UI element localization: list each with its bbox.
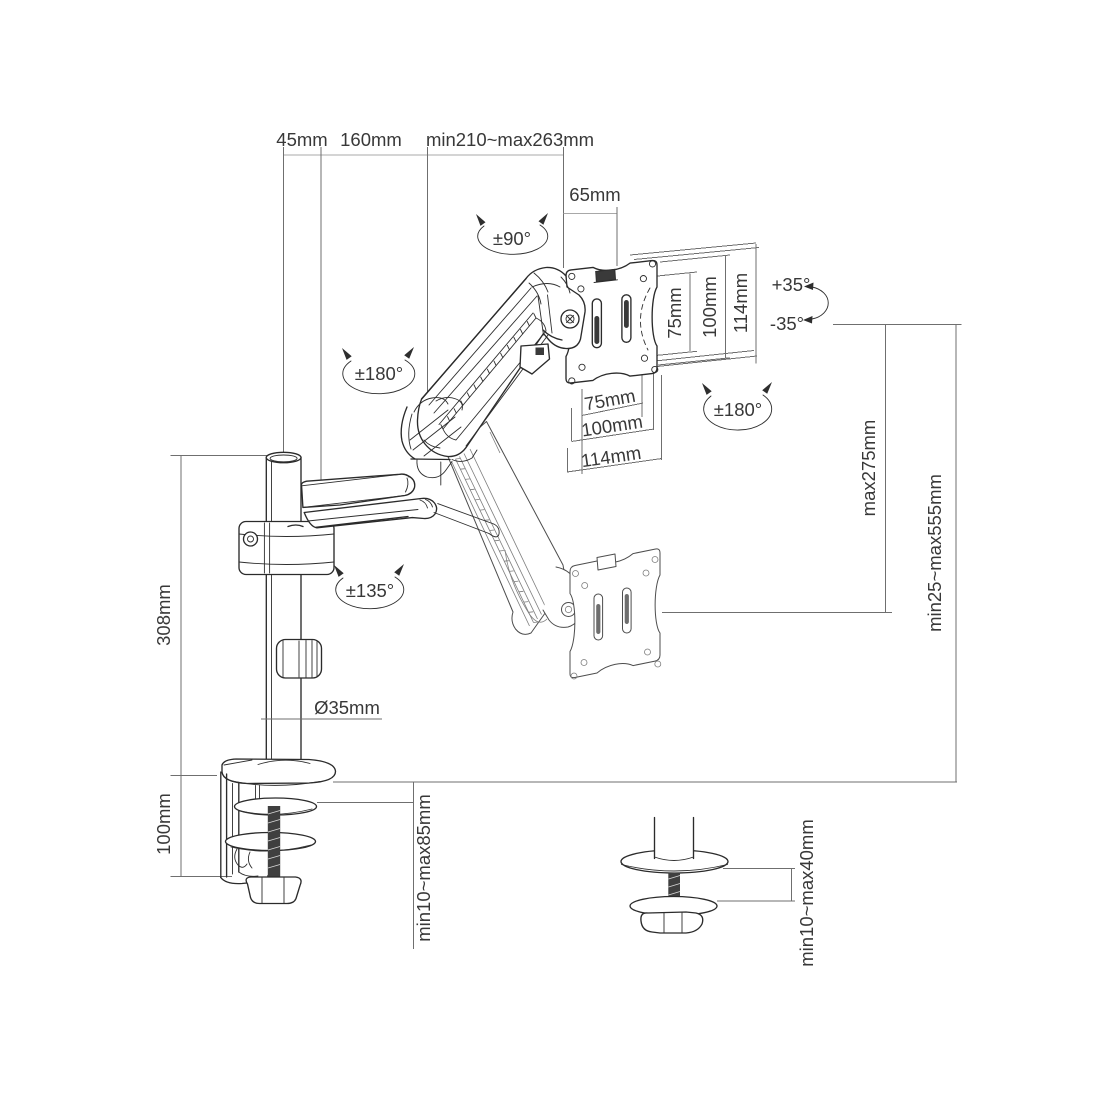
svg-text:±90°: ±90° xyxy=(493,228,531,249)
svg-text:min210~max263mm: min210~max263mm xyxy=(426,129,594,150)
svg-text:min10~max85mm: min10~max85mm xyxy=(413,794,434,942)
svg-text:45mm: 45mm xyxy=(276,129,327,150)
svg-text:-35°: -35° xyxy=(770,313,804,334)
svg-text:±135°: ±135° xyxy=(346,580,394,601)
svg-text:160mm: 160mm xyxy=(340,129,402,150)
svg-text:100mm: 100mm xyxy=(699,276,720,338)
svg-text:±180°: ±180° xyxy=(355,363,403,384)
svg-text:min10~max40mm: min10~max40mm xyxy=(796,819,817,967)
svg-text:+35°: +35° xyxy=(772,274,811,295)
svg-text:114mm: 114mm xyxy=(730,273,751,333)
svg-text:308mm: 308mm xyxy=(153,584,174,646)
svg-text:min25~max555mm: min25~max555mm xyxy=(924,474,945,632)
svg-text:±180°: ±180° xyxy=(714,399,762,420)
svg-text:max275mm: max275mm xyxy=(858,420,879,517)
svg-text:100mm: 100mm xyxy=(153,793,174,855)
svg-text:65mm: 65mm xyxy=(569,184,620,205)
svg-text:75mm: 75mm xyxy=(664,287,685,338)
svg-text:Ø35mm: Ø35mm xyxy=(314,697,380,718)
